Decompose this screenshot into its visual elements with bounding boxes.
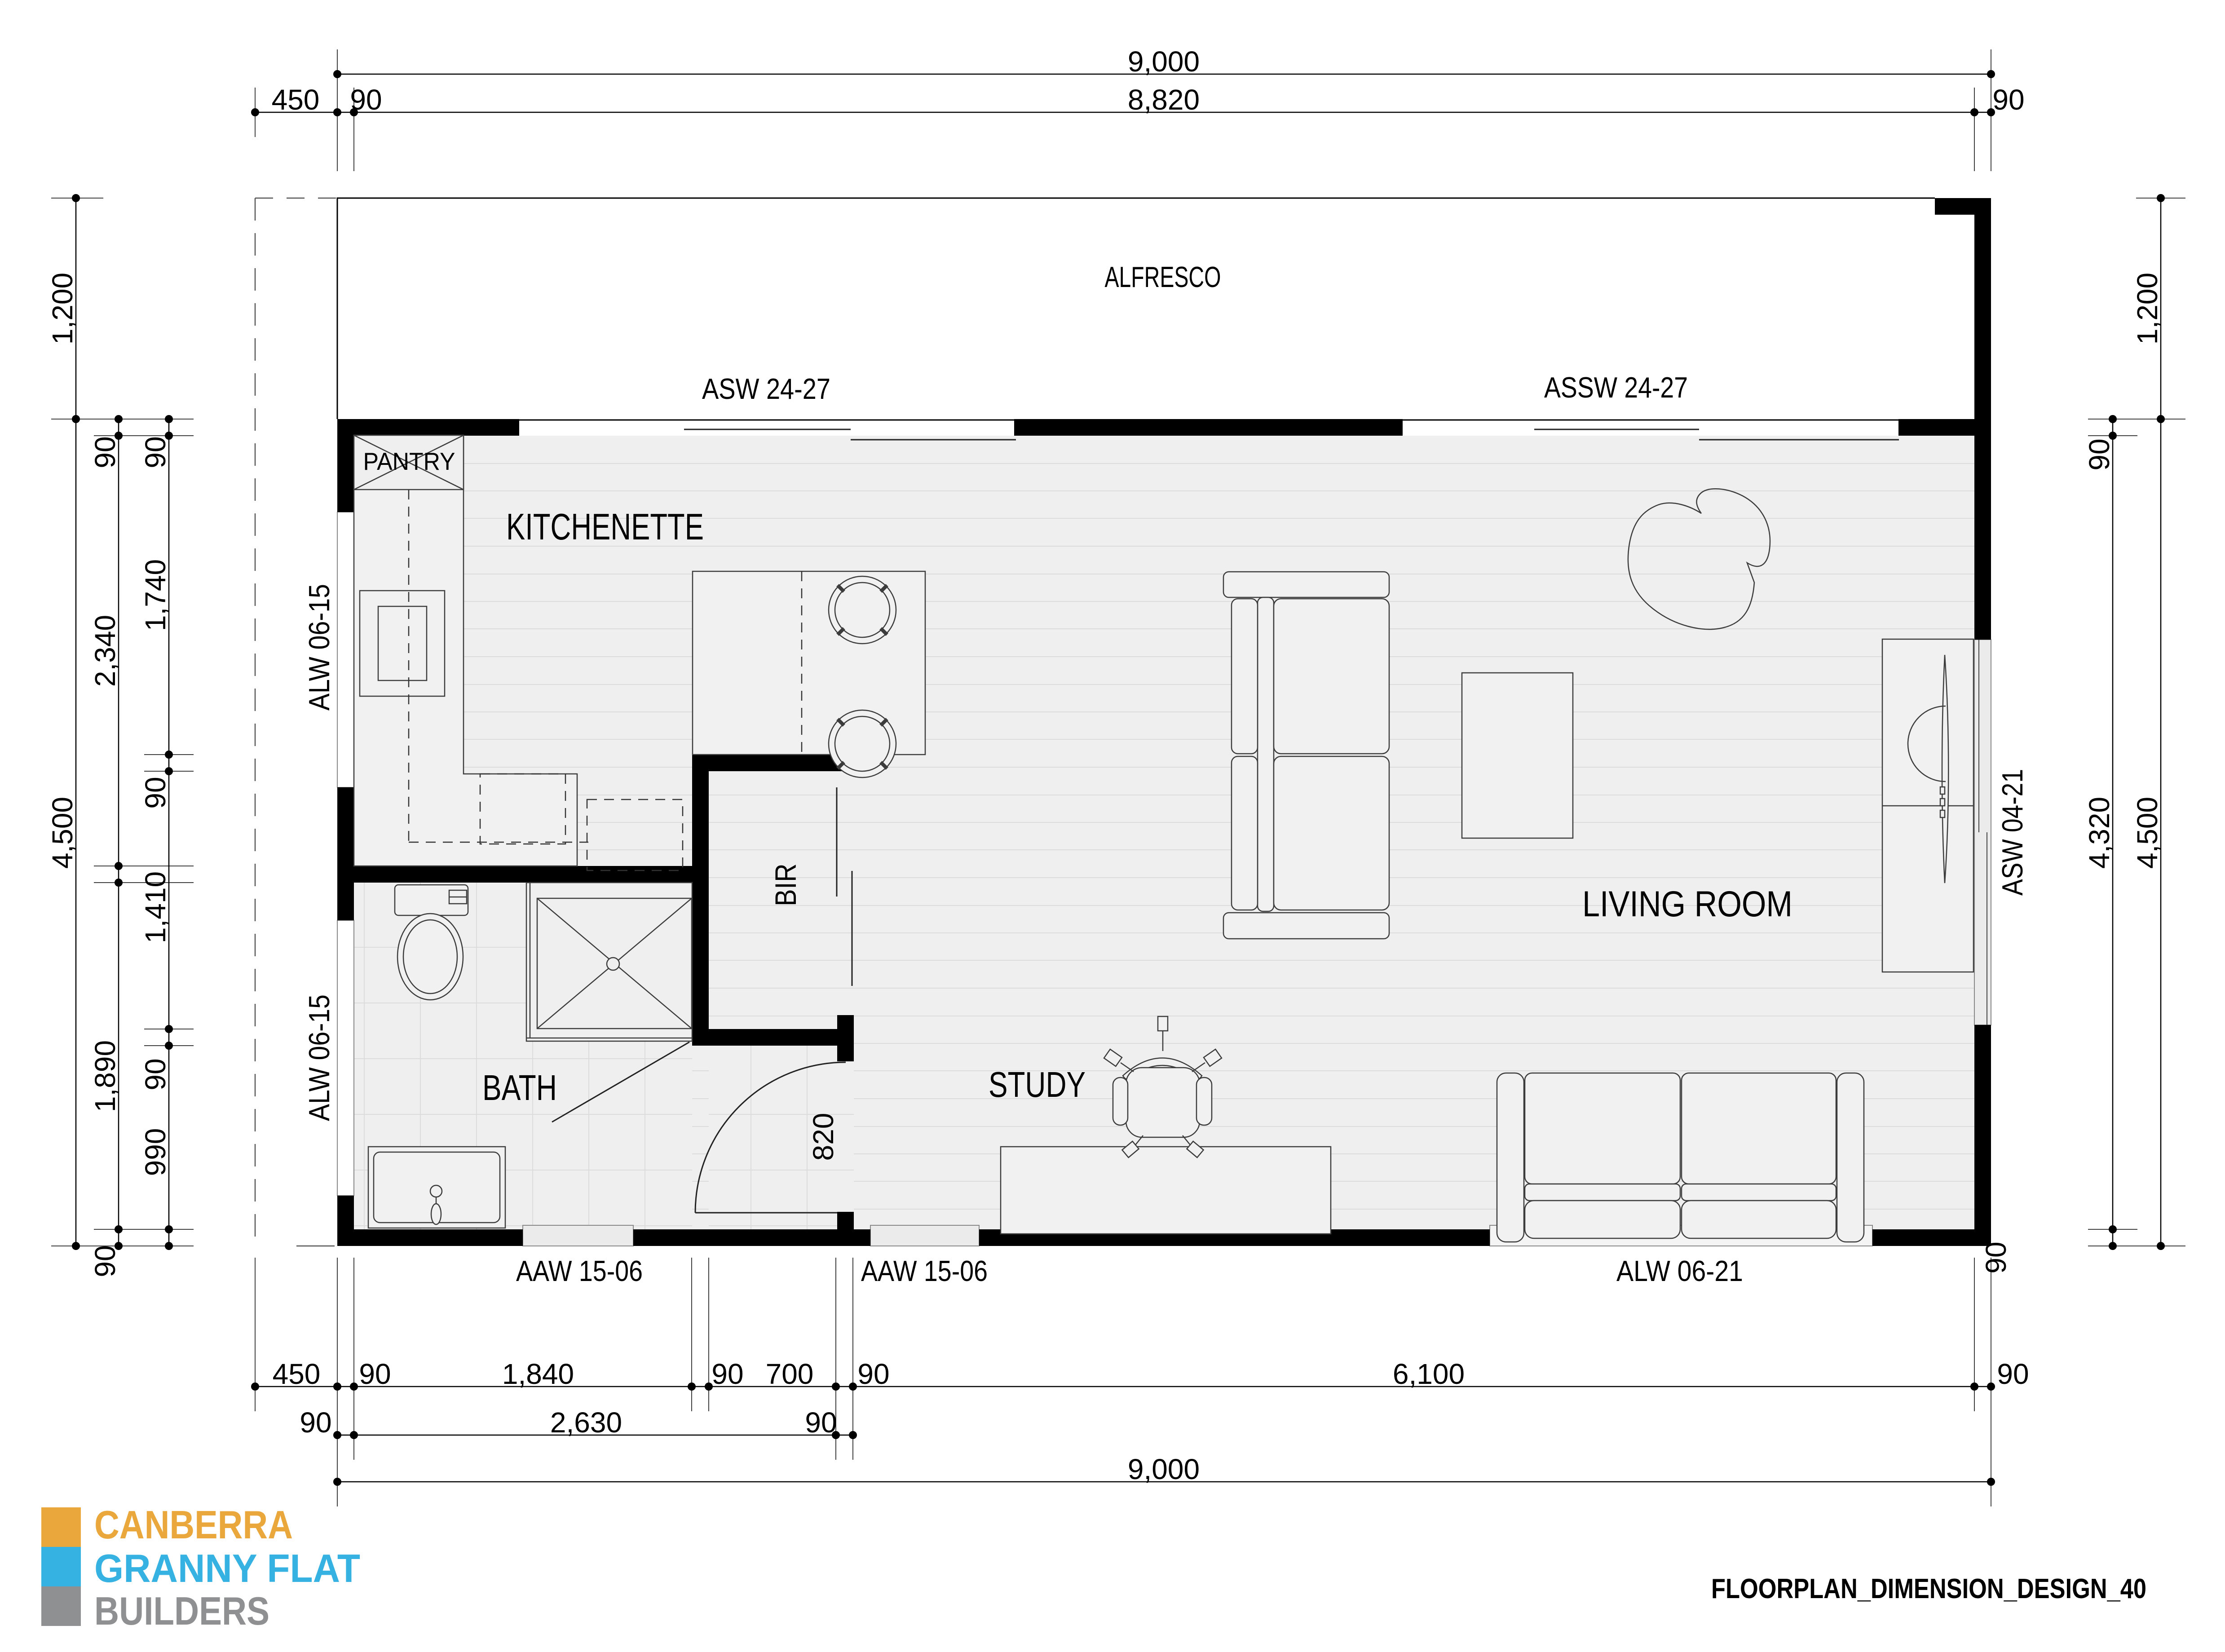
svg-text:1,200: 1,200 xyxy=(2131,273,2163,345)
svg-text:FLOORPLAN_DIMENSION_DESIGN_40: FLOORPLAN_DIMENSION_DESIGN_40 xyxy=(1711,1573,2146,1604)
svg-text:AAW 15-06: AAW 15-06 xyxy=(861,1254,988,1287)
svg-text:ASW 04-21: ASW 04-21 xyxy=(1996,769,2029,896)
svg-text:1,410: 1,410 xyxy=(139,871,172,943)
svg-text:90: 90 xyxy=(89,1245,121,1277)
svg-text:90: 90 xyxy=(359,1358,391,1390)
svg-text:BIR: BIR xyxy=(769,864,802,906)
svg-text:AAW 15-06: AAW 15-06 xyxy=(516,1254,643,1287)
svg-text:90: 90 xyxy=(1992,84,2024,116)
svg-text:KITCHENETTE: KITCHENETTE xyxy=(506,506,704,548)
svg-text:BATH: BATH xyxy=(482,1068,557,1108)
svg-text:PANTRY: PANTRY xyxy=(363,447,455,475)
svg-text:8,820: 8,820 xyxy=(1128,84,1200,116)
svg-text:4,500: 4,500 xyxy=(2131,797,2163,869)
svg-text:LIVING ROOM: LIVING ROOM xyxy=(1582,884,1792,924)
svg-text:90: 90 xyxy=(711,1358,743,1390)
svg-text:GRANNY FLAT: GRANNY FLAT xyxy=(94,1546,360,1590)
svg-text:450: 450 xyxy=(273,1358,321,1390)
svg-text:ASSW 24-27: ASSW 24-27 xyxy=(1544,371,1688,404)
svg-text:90: 90 xyxy=(300,1406,331,1439)
svg-text:820: 820 xyxy=(807,1113,839,1161)
svg-text:90: 90 xyxy=(139,777,172,808)
svg-text:CANBERRA: CANBERRA xyxy=(94,1502,293,1547)
svg-text:90: 90 xyxy=(139,436,172,468)
svg-text:90: 90 xyxy=(1980,1241,2012,1273)
svg-text:700: 700 xyxy=(766,1358,814,1390)
svg-text:90: 90 xyxy=(139,1058,172,1090)
svg-text:4,320: 4,320 xyxy=(2083,797,2115,869)
svg-text:90: 90 xyxy=(2083,438,2115,470)
svg-text:ALW 06-15: ALW 06-15 xyxy=(303,994,336,1121)
svg-text:1,740: 1,740 xyxy=(139,559,172,631)
svg-text:90: 90 xyxy=(857,1358,889,1390)
svg-text:ALFRESCO: ALFRESCO xyxy=(1105,261,1221,293)
svg-text:90: 90 xyxy=(350,84,382,116)
svg-text:990: 990 xyxy=(139,1128,172,1176)
svg-text:ASW 24-27: ASW 24-27 xyxy=(702,372,830,405)
svg-text:90: 90 xyxy=(89,436,121,468)
svg-text:BUILDERS: BUILDERS xyxy=(94,1589,269,1633)
svg-text:STUDY: STUDY xyxy=(989,1065,1086,1104)
svg-text:1,890: 1,890 xyxy=(89,1040,121,1112)
svg-text:2,340: 2,340 xyxy=(89,615,121,687)
svg-text:6,100: 6,100 xyxy=(1393,1358,1465,1390)
svg-text:ALW 06-15: ALW 06-15 xyxy=(303,584,336,711)
svg-text:90: 90 xyxy=(805,1406,837,1439)
svg-text:ALW 06-21: ALW 06-21 xyxy=(1616,1254,1743,1287)
svg-text:1,200: 1,200 xyxy=(46,273,79,345)
svg-text:9,000: 9,000 xyxy=(1128,1453,1200,1485)
svg-text:450: 450 xyxy=(272,84,320,116)
svg-text:9,000: 9,000 xyxy=(1128,45,1200,78)
svg-text:4,500: 4,500 xyxy=(46,797,79,869)
svg-text:2,630: 2,630 xyxy=(550,1406,622,1439)
svg-text:1,840: 1,840 xyxy=(502,1358,574,1390)
svg-text:90: 90 xyxy=(1997,1358,2029,1390)
